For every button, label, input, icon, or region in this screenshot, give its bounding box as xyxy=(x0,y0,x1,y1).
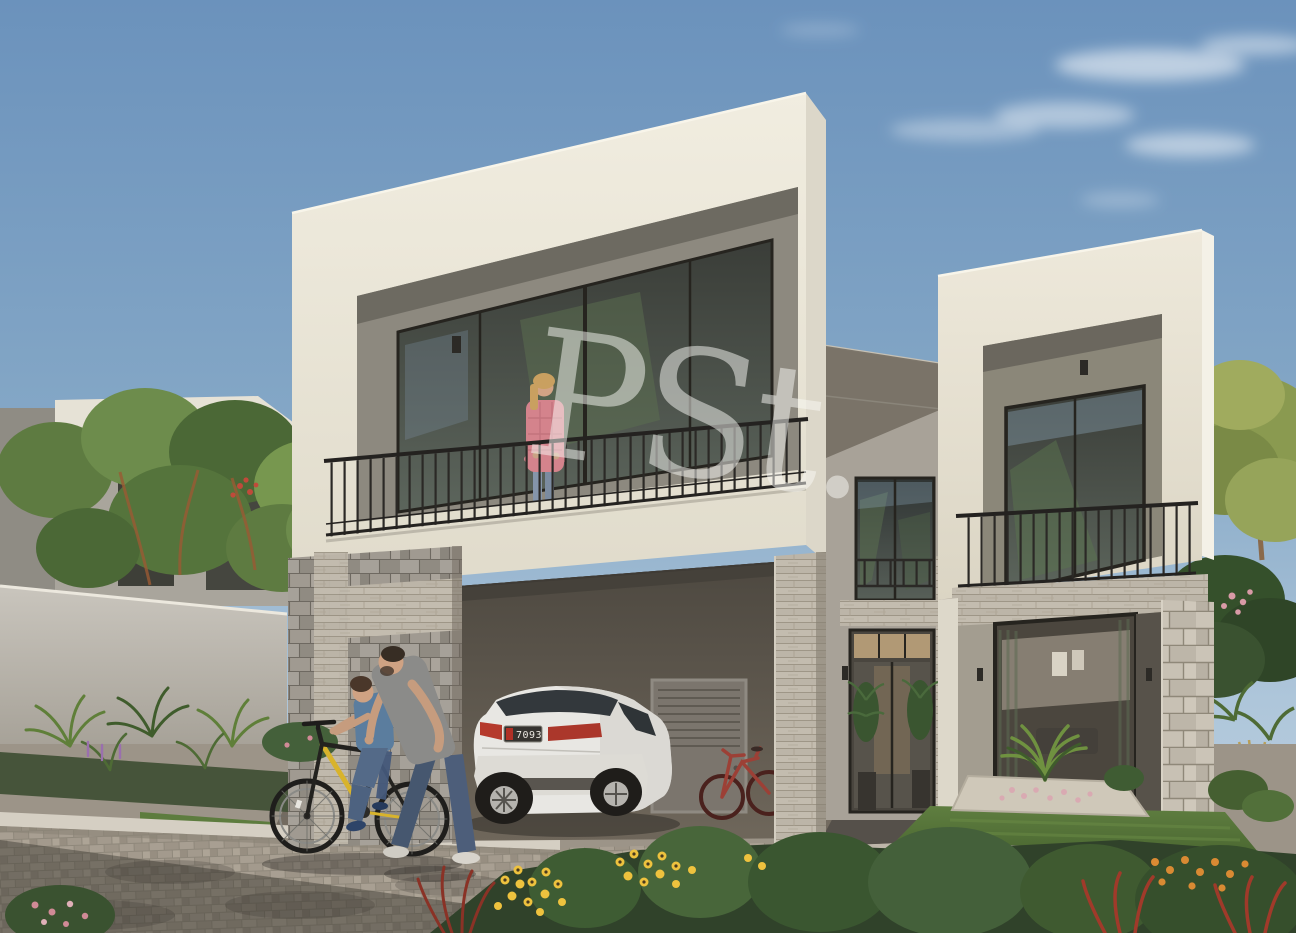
license-plate: 70934 xyxy=(504,726,549,742)
entrance-tall-window xyxy=(856,478,934,600)
wall-sconce xyxy=(1146,668,1152,681)
wall-sconce xyxy=(842,666,848,680)
stone-pier-right xyxy=(775,552,826,846)
stone-corner-pillar xyxy=(1162,600,1214,820)
wall-sconce xyxy=(452,336,461,353)
wall-sconce xyxy=(977,668,983,681)
license-plate-number: 70934 xyxy=(516,730,549,741)
right-balcony-railing xyxy=(956,503,1198,588)
villa-rendering: 70934 xyxy=(0,0,1296,933)
wall-sconce xyxy=(1080,360,1088,375)
scene-illustration: 70934 xyxy=(0,0,1296,933)
boundary-wall xyxy=(0,586,287,768)
stone-lintel xyxy=(840,600,936,626)
